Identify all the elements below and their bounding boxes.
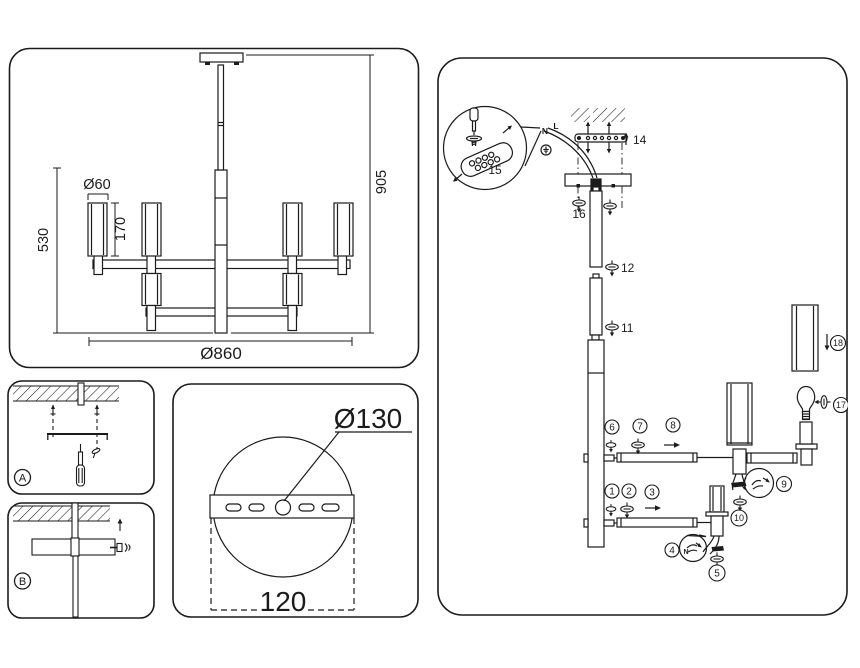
- step-2: 2: [626, 487, 632, 498]
- shade-neck: [94, 256, 103, 275]
- canopy-detail-panel: Ø130 120: [172, 383, 419, 618]
- detail-b-label: B: [19, 576, 26, 588]
- dim-body-height: 530: [36, 228, 52, 252]
- stem-rod: [73, 556, 78, 617]
- part-12-label: 12: [621, 261, 635, 275]
- mounting-bracket: [575, 134, 627, 142]
- canopy-hub: [71, 538, 79, 556]
- lower-arm: [604, 518, 711, 527]
- shade-18: [792, 305, 818, 371]
- shade-neck: [338, 256, 347, 275]
- detail-a-label: A: [19, 473, 27, 485]
- dim-canopy-diameter: Ø130: [334, 403, 403, 434]
- detail-b-panel: B: [7, 502, 155, 619]
- part-15-label: 15: [488, 163, 502, 177]
- step-5: 5: [714, 569, 720, 580]
- stem-section-1: [590, 187, 602, 267]
- step-4: 4: [669, 546, 675, 557]
- step-1: 1: [609, 487, 615, 498]
- dim-overall-height: 905: [374, 170, 390, 194]
- step-10: 10: [734, 513, 744, 523]
- step-18: 18: [833, 338, 843, 348]
- hanging-rod: [218, 65, 224, 170]
- ceiling-pipe: [78, 383, 84, 405]
- wire-l-label: L: [553, 121, 558, 131]
- part-14-label: 14: [633, 133, 647, 147]
- ceiling-hatch: [13, 386, 119, 401]
- detail-a-panel: A: [7, 380, 155, 495]
- ceiling-pipe: [72, 503, 78, 539]
- step-17: 17: [836, 400, 846, 410]
- dim-shade-height: 170: [113, 217, 129, 241]
- step-8: 8: [670, 421, 676, 432]
- balloon4-wire-label: N: [683, 549, 688, 556]
- wire-n-label: N: [542, 126, 548, 136]
- panel-border: [10, 49, 419, 368]
- front-view-panel: Ø60 170 530 905 Ø860: [8, 47, 420, 369]
- dim-bracket-width: 120: [260, 586, 307, 617]
- part-11-label: 11: [621, 321, 634, 335]
- assembly-instruction-sheet: Ø60 170 530 905 Ø860: [0, 0, 860, 668]
- step-7: 7: [637, 422, 643, 433]
- step-9: 9: [781, 480, 787, 491]
- upper-shade: [727, 383, 752, 445]
- ceiling-hatch: [13, 506, 110, 521]
- central-column: [215, 170, 227, 333]
- part-16-label: 16: [572, 207, 586, 221]
- step-3: 3: [649, 488, 655, 499]
- dim-overall-diameter: Ø860: [200, 344, 242, 363]
- step-6: 6: [609, 423, 615, 434]
- dim-shade-diameter: Ø60: [83, 177, 110, 193]
- exploded-assembly-panel: 14 15 16 12 11 N L N 6 7 8 1 2 3 9 10 4 …: [437, 57, 848, 616]
- stem-section-2: [590, 274, 602, 335]
- ceiling-hatch: [571, 108, 625, 122]
